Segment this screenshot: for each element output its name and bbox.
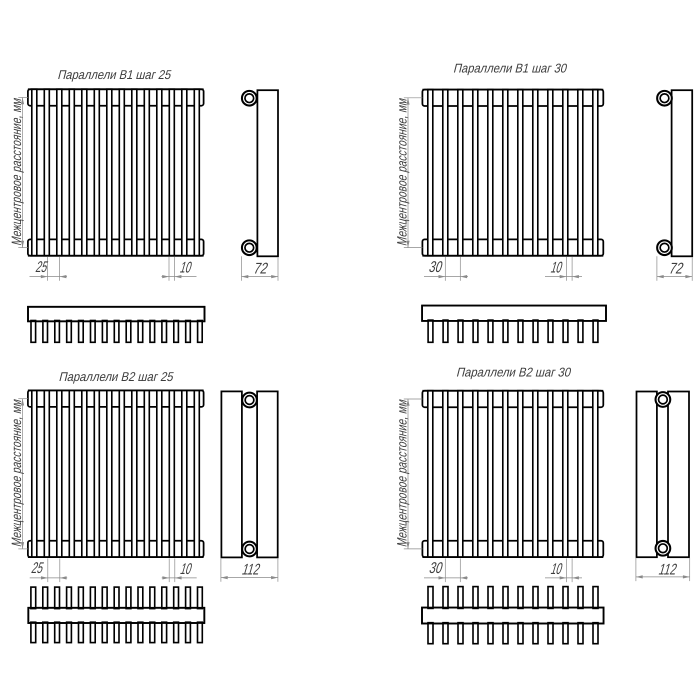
svg-text:Параллели В1 шаг 25: Параллели В1 шаг 25 xyxy=(56,67,173,82)
svg-text:Параллели В2 шаг 30: Параллели В2 шаг 30 xyxy=(455,365,573,380)
svg-text:Параллели В2 шаг 25: Параллели В2 шаг 25 xyxy=(58,369,176,384)
svg-text:Межцентровое расстояние, мм: Межцентровое расстояние, мм xyxy=(9,397,24,548)
svg-text:Параллели В1 шаг 30: Параллели В1 шаг 30 xyxy=(452,60,569,75)
svg-text:Межцентровое расстояние, мм: Межцентровое расстояние, мм xyxy=(395,397,410,548)
svg-text:Межцентровое расстояние, мм: Межцентровое расстояние, мм xyxy=(395,96,410,247)
svg-text:Межцентровое расстояние, мм: Межцентровое расстояние, мм xyxy=(9,96,24,247)
